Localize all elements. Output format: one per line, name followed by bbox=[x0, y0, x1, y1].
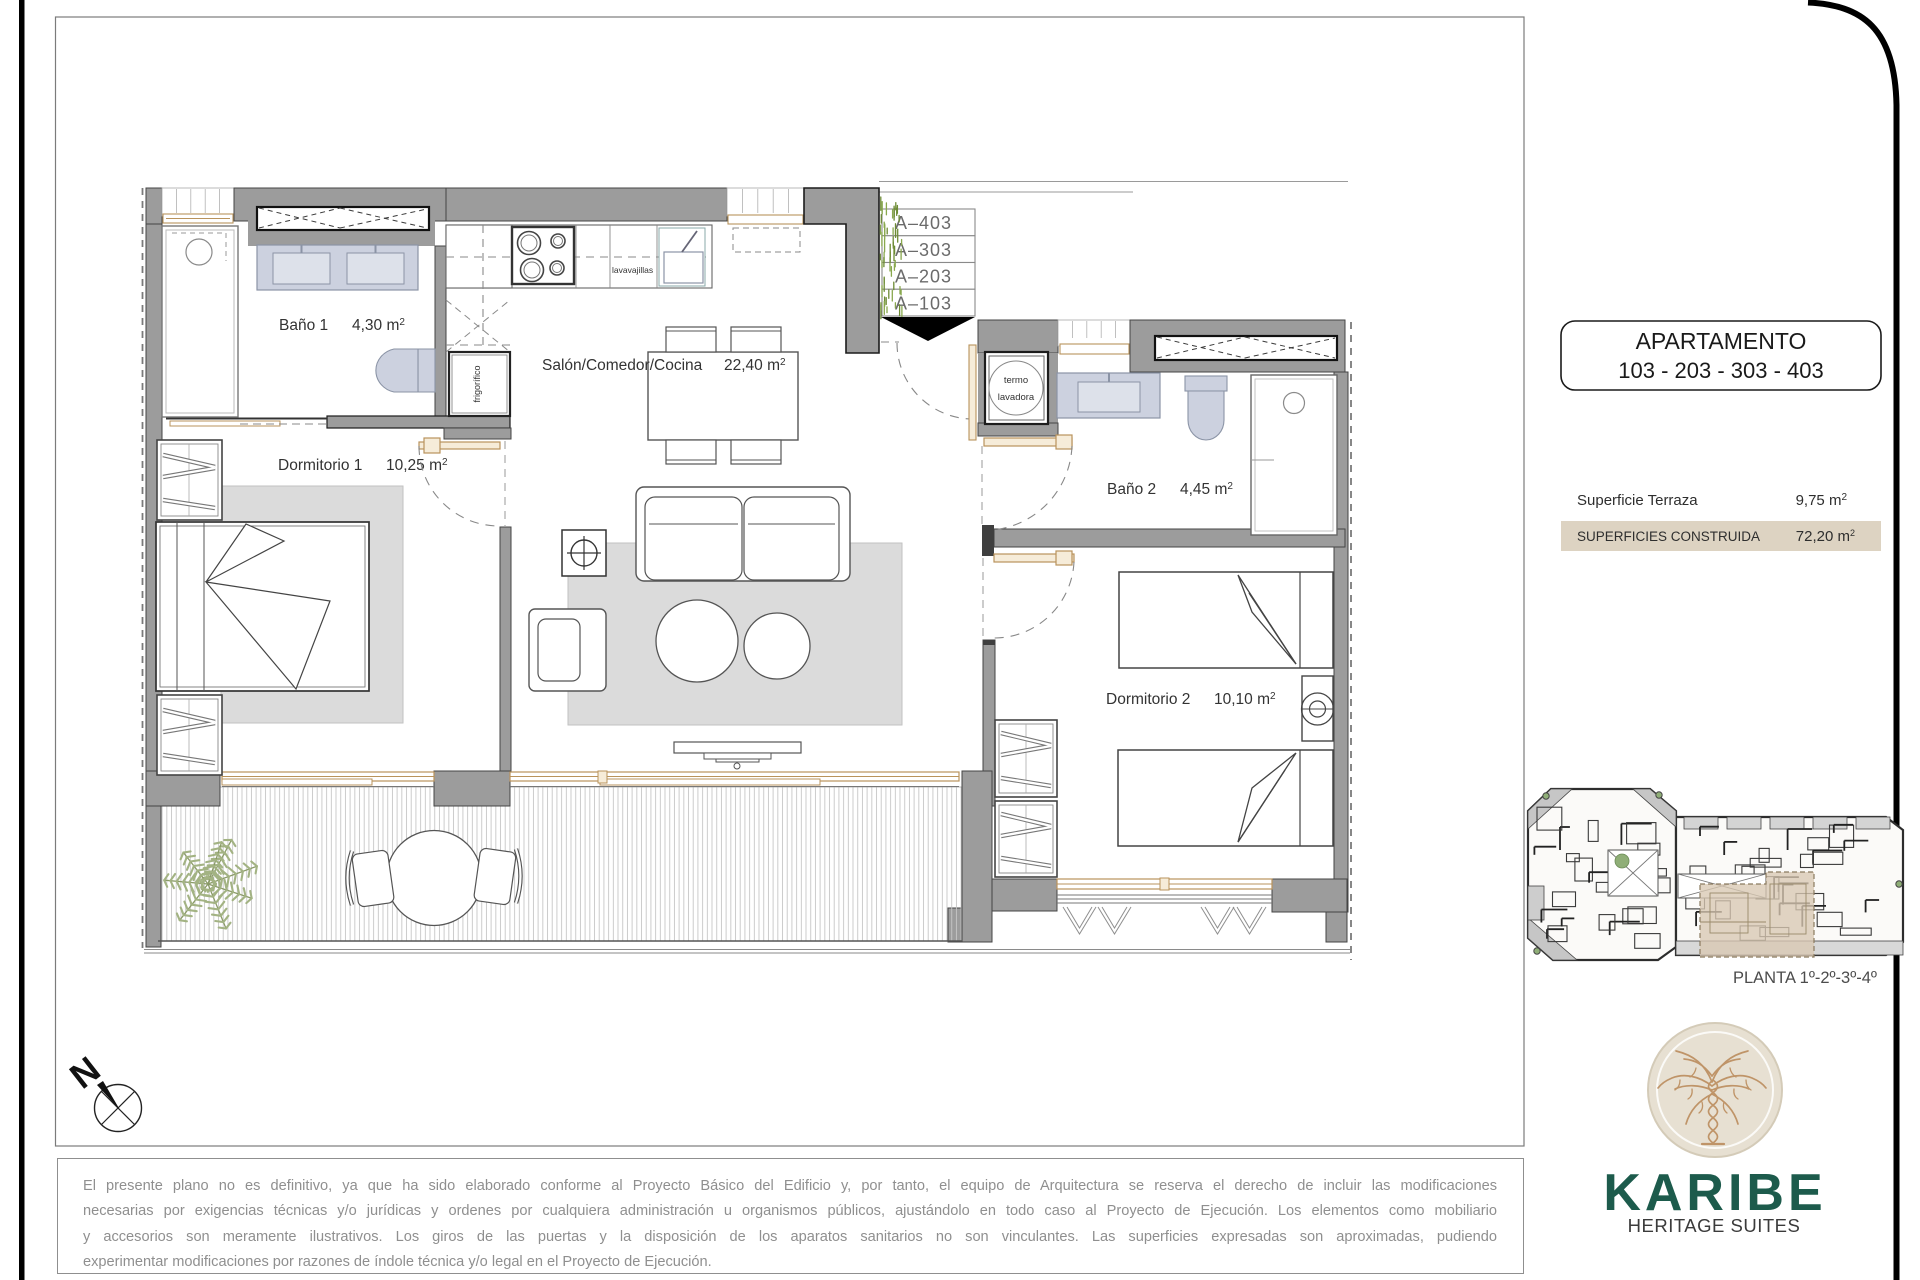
svg-text:Baño 1: Baño 1 bbox=[279, 317, 328, 334]
svg-text:SUPERFICIES CONSTRUIDA: SUPERFICIES CONSTRUIDA bbox=[1577, 529, 1760, 544]
svg-text:Superficie Terraza: Superficie Terraza bbox=[1577, 492, 1698, 509]
svg-text:Salón/Comedor/Cocina: Salón/Comedor/Cocina bbox=[542, 357, 703, 374]
svg-text:4,30 m2: 4,30 m2 bbox=[352, 317, 405, 334]
svg-text:Dormitorio 1: Dormitorio 1 bbox=[278, 457, 362, 474]
svg-text:A–103: A–103 bbox=[895, 293, 952, 313]
svg-text:4,45 m2: 4,45 m2 bbox=[1180, 481, 1233, 498]
svg-text:lavadora: lavadora bbox=[998, 392, 1035, 403]
svg-text:Baño 2: Baño 2 bbox=[1107, 481, 1156, 498]
svg-text:103 - 203 - 303 - 403: 103 - 203 - 303 - 403 bbox=[1618, 358, 1823, 383]
svg-text:HERITAGE SUITES: HERITAGE SUITES bbox=[1628, 1215, 1801, 1236]
svg-text:frigorífico: frigorífico bbox=[472, 365, 482, 402]
svg-text:N: N bbox=[62, 1048, 108, 1096]
svg-text:lavavajillas: lavavajillas bbox=[612, 265, 653, 275]
svg-text:PLANTA 1º-2º-3º-4º: PLANTA 1º-2º-3º-4º bbox=[1733, 969, 1877, 987]
svg-text:A–403: A–403 bbox=[895, 213, 952, 233]
svg-text:A–203: A–203 bbox=[895, 267, 952, 287]
svg-text:22,40 m2: 22,40 m2 bbox=[724, 357, 786, 374]
svg-text:Dormitorio 2: Dormitorio 2 bbox=[1106, 691, 1190, 708]
svg-text:APARTAMENTO: APARTAMENTO bbox=[1636, 328, 1807, 354]
svg-text:KARIBE: KARIBE bbox=[1603, 1164, 1826, 1222]
svg-text:72,20 m2: 72,20 m2 bbox=[1796, 528, 1855, 545]
svg-text:termo: termo bbox=[1004, 375, 1028, 386]
svg-text:9,75 m2: 9,75 m2 bbox=[1796, 492, 1848, 509]
svg-text:10,25 m2: 10,25 m2 bbox=[386, 457, 448, 474]
svg-text:10,10 m2: 10,10 m2 bbox=[1214, 691, 1276, 708]
svg-text:A–303: A–303 bbox=[895, 240, 952, 260]
